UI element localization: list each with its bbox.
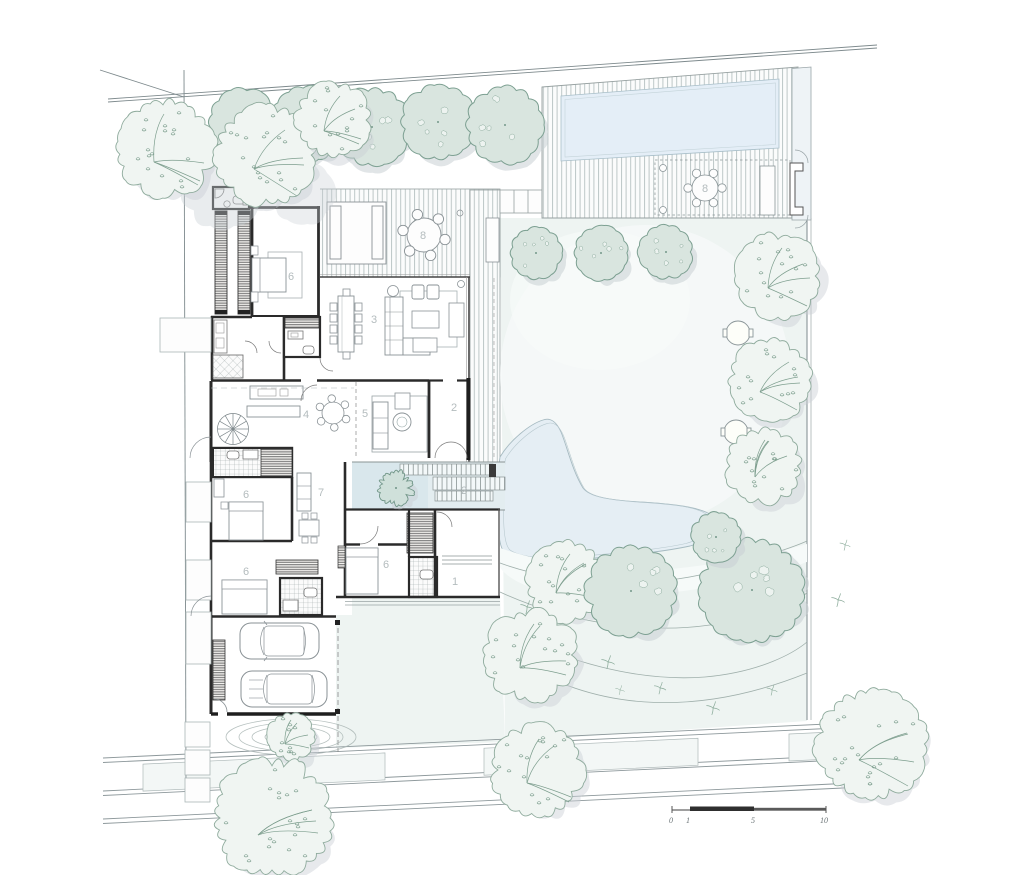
svg-text:8: 8 xyxy=(702,183,708,195)
svg-text:4: 4 xyxy=(303,409,309,421)
svg-text:5: 5 xyxy=(362,408,368,420)
svg-text:8: 8 xyxy=(420,230,426,242)
svg-text:1: 1 xyxy=(452,576,458,588)
svg-text:10: 10 xyxy=(820,816,828,825)
svg-text:5: 5 xyxy=(751,816,755,825)
svg-text:6: 6 xyxy=(383,559,389,571)
svg-text:3: 3 xyxy=(371,314,377,326)
svg-text:6: 6 xyxy=(243,489,249,501)
svg-text:1: 1 xyxy=(686,816,690,825)
svg-text:7: 7 xyxy=(318,487,324,499)
svg-text:2: 2 xyxy=(461,485,467,497)
svg-text:2: 2 xyxy=(451,402,457,414)
svg-text:6: 6 xyxy=(243,566,249,578)
svg-text:0: 0 xyxy=(669,816,673,825)
svg-text:6: 6 xyxy=(288,271,294,283)
